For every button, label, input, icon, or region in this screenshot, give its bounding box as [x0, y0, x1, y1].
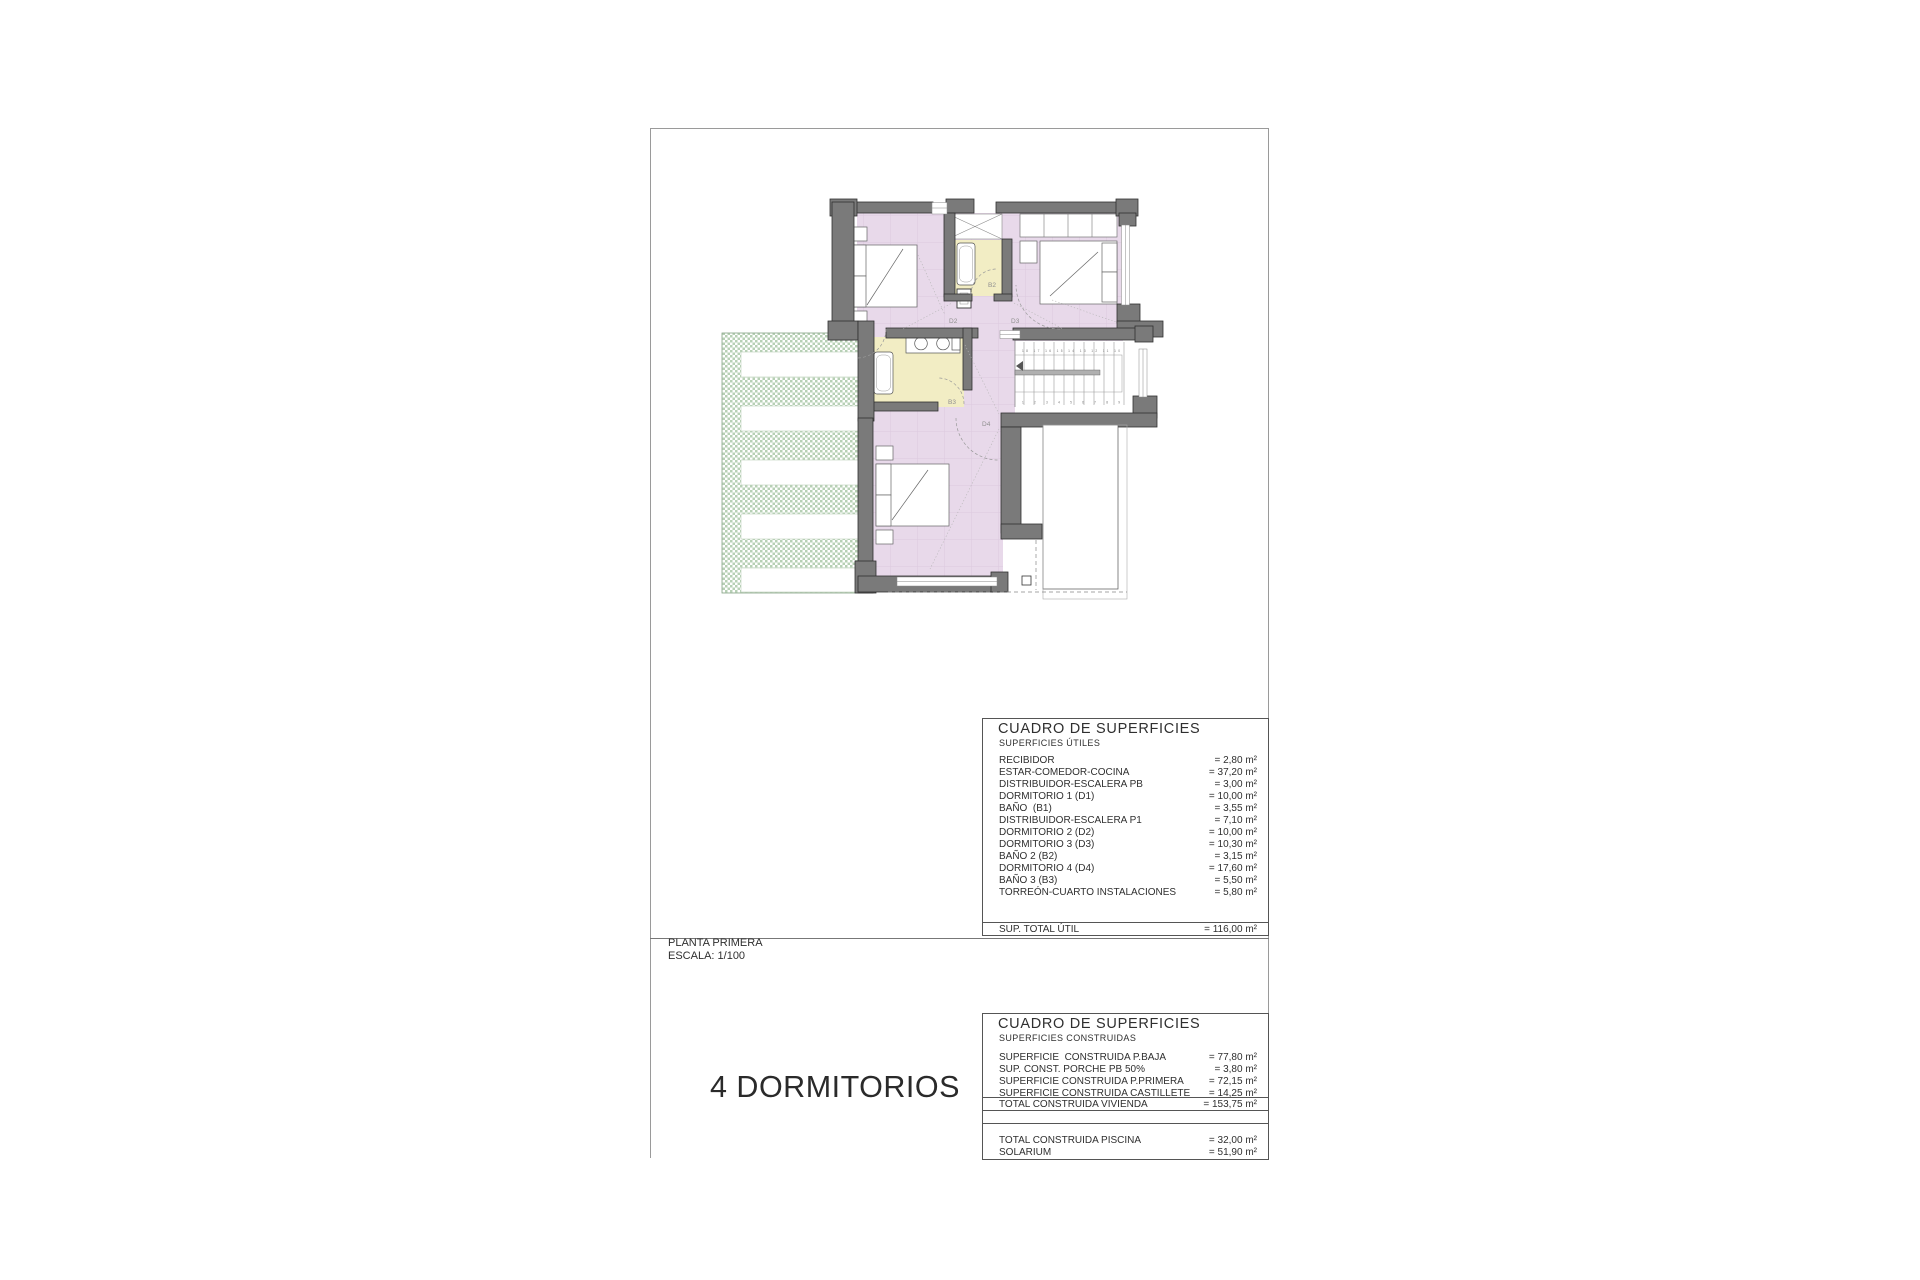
table-row: DORMITORIO 3 (D3)= 10,30 m² — [999, 839, 1257, 851]
table-row: BAÑO 3 (B3)= 5,50 m² — [999, 875, 1257, 887]
table-row: DORMITORIO 4 (D4)= 17,60 m² — [999, 863, 1257, 875]
stair-numbers-bottom: 1 2 3 4 5 6 7 8 9 — [1022, 401, 1120, 405]
sheet-border-right — [1268, 128, 1269, 1160]
table-row: SUPERFICIE CONSTRUIDA P.PRIMERA= 72,15 m… — [999, 1076, 1257, 1088]
table-row: BAÑO 2 (B2)= 3,15 m² — [999, 851, 1257, 863]
plan-note-line2: ESCALA: 1/100 — [668, 950, 763, 963]
table-title: CUADRO DE SUPERFICIES — [998, 721, 1200, 737]
table-row: DISTRIBUIDOR-ESCALERA P1= 7,10 m² — [999, 815, 1257, 827]
sheet-border-top — [650, 128, 1269, 129]
room-label-b3: B3 — [948, 399, 956, 406]
closets — [948, 214, 1117, 239]
table-row: RECIBIDOR= 2,80 m² — [999, 755, 1257, 767]
table-row: SUPERFICIE CONSTRUIDA P.BAJA= 77,80 m² — [999, 1052, 1257, 1064]
plan-note-line1: PLANTA PRIMERA — [668, 937, 763, 950]
table-section-line — [983, 1123, 1268, 1124]
table-row: SUP. CONST. PORCHE PB 50%= 3,80 m² — [999, 1064, 1257, 1076]
column-marker — [1022, 576, 1031, 585]
stair-direction-arrow — [1016, 361, 1023, 371]
table-row: SOLARIUM= 51,90 m² — [999, 1147, 1257, 1159]
room-label-d3: D3 — [1011, 318, 1020, 325]
staircase: 18 17 16 15 14 13 12 11 10 1 2 3 4 5 6 7… — [1015, 340, 1124, 407]
room-label-d4: D4 — [982, 421, 991, 428]
table-row: DISTRIBUIDOR-ESCALERA PB= 3,00 m² — [999, 779, 1257, 791]
floor-plan: 18 17 16 15 14 13 12 11 10 1 2 3 4 5 6 7… — [700, 150, 1200, 620]
drawing-sheet-page: 18 17 16 15 14 13 12 11 10 1 2 3 4 5 6 7… — [0, 0, 1920, 1280]
sheet-border-left — [650, 128, 651, 1158]
table-subtitle: SUPERFICIES CONSTRUIDAS — [999, 1033, 1136, 1043]
room-label-b2: B2 — [988, 282, 996, 289]
table-row: BAÑO (B1)= 3,55 m² — [999, 803, 1257, 815]
table-row: DORMITORIO 2 (D2)= 10,00 m² — [999, 827, 1257, 839]
plan-note: PLANTA PRIMERA ESCALA: 1/100 — [668, 937, 763, 963]
table-row: TOTAL CONSTRUIDA PISCINA= 32,00 m² — [999, 1135, 1257, 1147]
table-row: ESTAR-COMEDOR-COCINA= 37,20 m² — [999, 767, 1257, 779]
table-superficies-utiles: CUADRO DE SUPERFICIES SUPERFICIES ÚTILES… — [982, 718, 1269, 936]
table-title: CUADRO DE SUPERFICIES — [998, 1016, 1200, 1032]
page-title: 4 DORMITORIOS — [710, 1070, 960, 1105]
terrace-pergola — [722, 333, 868, 593]
table-row: TORREÓN-CUARTO INSTALACIONES= 5,80 m² — [999, 887, 1257, 899]
room-label-d2: D2 — [949, 318, 958, 325]
stair-numbers-top: 18 17 16 15 14 13 12 11 10 — [1022, 349, 1120, 353]
table-row: DORMITORIO 1 (D1)= 10,00 m² — [999, 791, 1257, 803]
total-row-sup-total-util: SUP. TOTAL ÚTIL = 116,00 m² — [983, 922, 1268, 936]
total-row-construida-vivienda: TOTAL CONSTRUIDA VIVIENDA = 153,75 m² — [983, 1097, 1268, 1111]
table-subtitle: SUPERFICIES ÚTILES — [999, 738, 1100, 748]
table-superficies-construidas: CUADRO DE SUPERFICIES SUPERFICIES CONSTR… — [982, 1013, 1269, 1160]
